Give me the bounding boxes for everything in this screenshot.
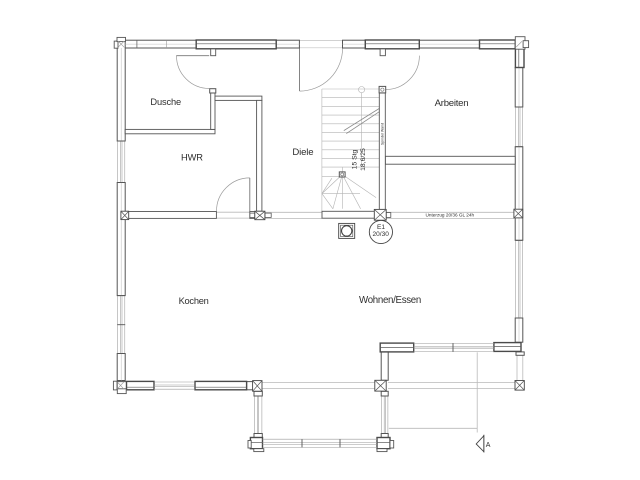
svg-text:18,6/25: 18,6/25 [360, 148, 367, 171]
svg-text:Dusche: Dusche [150, 97, 181, 107]
svg-text:Arbeiten: Arbeiten [435, 98, 469, 109]
svg-text:Wohnen/Essen: Wohnen/Essen [359, 295, 421, 306]
svg-text:Kochen: Kochen [179, 296, 209, 306]
svg-text:Unterzug 20/36 GL 24h: Unterzug 20/36 GL 24h [426, 213, 475, 218]
svg-text:Diele: Diele [292, 147, 313, 158]
svg-text:Spindel Wand: Spindel Wand [381, 123, 385, 145]
svg-text:20/30: 20/30 [373, 231, 390, 238]
svg-text:A: A [486, 442, 491, 449]
svg-text:15 Stg: 15 Stg [352, 149, 359, 169]
svg-text:HWR: HWR [181, 152, 203, 162]
